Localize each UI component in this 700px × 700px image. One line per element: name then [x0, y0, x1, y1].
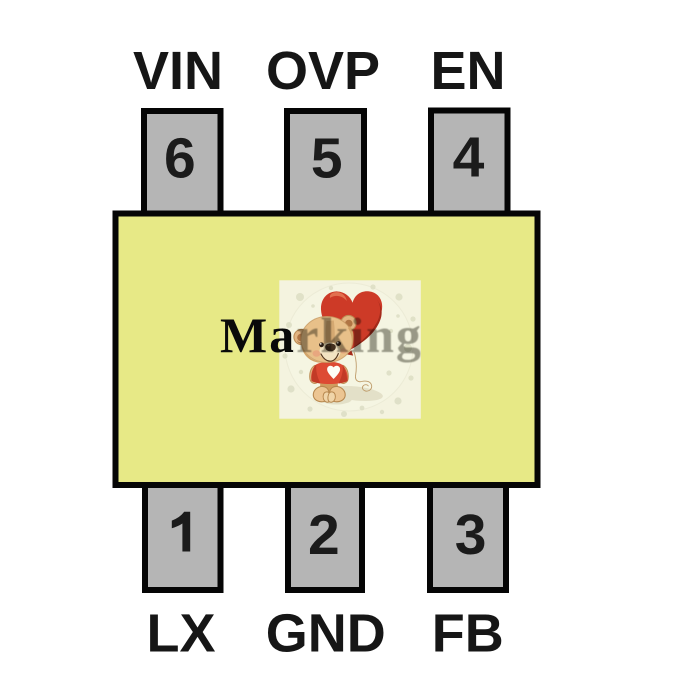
svg-text:6: 6: [164, 127, 196, 191]
svg-text:VIN: VIN: [133, 41, 223, 101]
svg-text:2: 2: [308, 503, 340, 567]
svg-text:3: 3: [455, 503, 487, 567]
svg-text:5: 5: [311, 127, 343, 191]
svg-text:EN: EN: [430, 41, 505, 101]
svg-text:FB: FB: [432, 604, 504, 664]
svg-text:OVP: OVP: [266, 41, 380, 101]
svg-text:LX: LX: [146, 604, 215, 664]
svg-text:4: 4: [453, 126, 485, 190]
svg-text:GND: GND: [266, 604, 386, 664]
